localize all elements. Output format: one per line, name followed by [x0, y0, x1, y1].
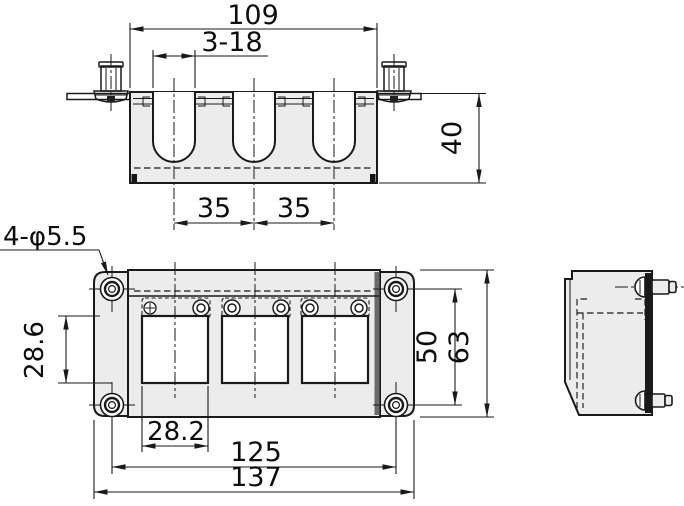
dim-label-3-18: 3-18 [201, 27, 262, 58]
screw-cap [669, 282, 676, 293]
dim-label-40: 40 [437, 121, 468, 155]
right-flange-tab [377, 94, 421, 100]
screw-shaft [652, 280, 669, 294]
terminal-screw [224, 300, 240, 316]
dim-label-35-a: 35 [197, 193, 231, 224]
front-view: 4-φ5.5 28.6 50 63 [0, 222, 494, 499]
callout-corner-holes: 4-φ5.5 [0, 222, 108, 275]
screw-shaft [652, 394, 665, 407]
mounting-screw-left [94, 54, 128, 112]
right-shadow-edge [375, 272, 380, 415]
dim-label-28.6: 28.6 [20, 321, 50, 379]
screw-tip [390, 96, 398, 102]
terminal-screw [351, 300, 367, 316]
corner-mark-left [132, 174, 138, 182]
side-screw-bottom [636, 391, 673, 410]
screw-tip [107, 96, 115, 102]
mounting-face-edge [645, 273, 652, 413]
top-section-view: 109 3-18 40 35 35 [67, 0, 486, 230]
corner-mark-right [370, 174, 376, 182]
drawing-sheet: 109 3-18 40 35 35 [0, 0, 684, 506]
dim-label-63: 63 [444, 330, 475, 364]
terminal-screw [302, 300, 318, 316]
screw-cap [665, 396, 672, 406]
terminal-screw [273, 300, 289, 316]
left-flange-tab [67, 94, 130, 100]
mounting-screw-right [377, 54, 411, 112]
dim-label-28.2: 28.2 [147, 417, 205, 447]
dim-label-137: 137 [230, 462, 282, 493]
terminal-screw [193, 300, 209, 316]
dim-slot-size: 3-18 [153, 27, 268, 88]
dim-label-50: 50 [412, 330, 443, 364]
side-view [565, 271, 684, 415]
drawing-canvas: 109 3-18 40 35 35 [0, 0, 684, 506]
dim-label-35-b: 35 [277, 193, 311, 224]
dim-label-4-phi5.5: 4-φ5.5 [3, 222, 87, 252]
dim-depth: 40 [379, 94, 486, 184]
